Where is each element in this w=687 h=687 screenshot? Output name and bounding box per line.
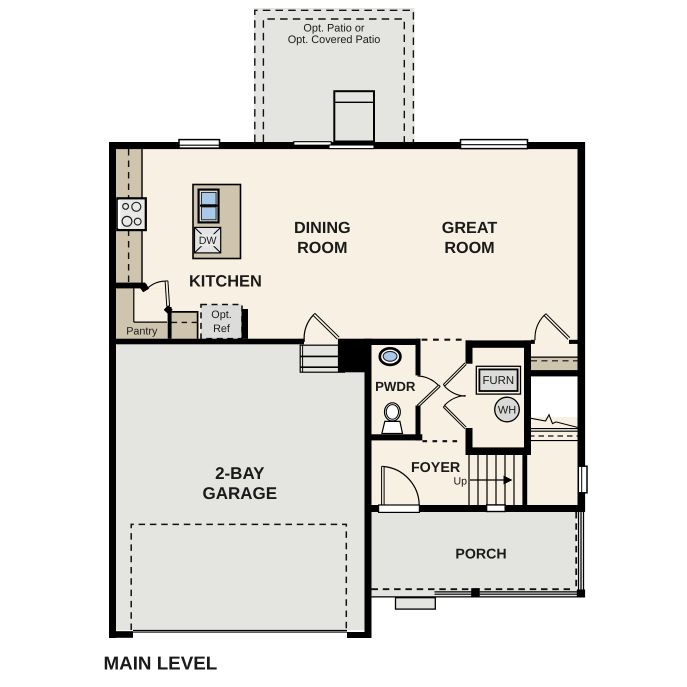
svg-text:MAIN LEVEL: MAIN LEVEL xyxy=(104,652,218,673)
svg-text:PORCH: PORCH xyxy=(455,546,506,562)
svg-text:DW: DW xyxy=(199,235,218,247)
svg-text:PWDR: PWDR xyxy=(375,379,416,394)
svg-text:Pantry: Pantry xyxy=(126,326,158,338)
svg-text:KITCHEN: KITCHEN xyxy=(189,273,262,291)
svg-text:ROOM: ROOM xyxy=(297,239,347,257)
svg-text:ROOM: ROOM xyxy=(444,239,494,257)
svg-text:FOYER: FOYER xyxy=(411,460,461,476)
svg-text:GREAT: GREAT xyxy=(442,219,498,237)
svg-text:WH: WH xyxy=(498,404,516,416)
svg-text:GARAGE: GARAGE xyxy=(202,484,277,503)
svg-text:FURN: FURN xyxy=(482,375,514,387)
svg-text:Ref: Ref xyxy=(213,323,231,335)
svg-text:DINING: DINING xyxy=(294,219,351,237)
svg-text:Opt. Patio or: Opt. Patio or xyxy=(303,23,365,35)
svg-text:Opt.: Opt. xyxy=(211,309,231,321)
svg-text:Opt. Covered Patio: Opt. Covered Patio xyxy=(288,34,381,46)
svg-text:Up: Up xyxy=(454,476,468,488)
svg-text:2-BAY: 2-BAY xyxy=(215,464,265,483)
